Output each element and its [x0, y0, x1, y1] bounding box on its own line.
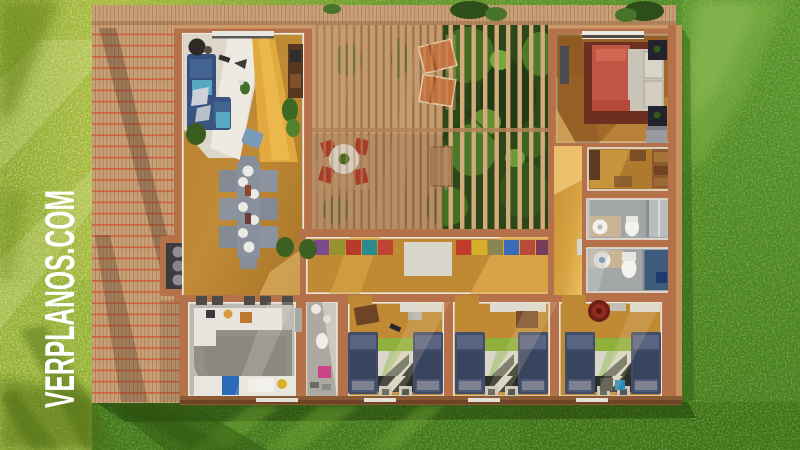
svg-text:VERPLANOS.COM: VERPLANOS.COM [36, 190, 83, 408]
